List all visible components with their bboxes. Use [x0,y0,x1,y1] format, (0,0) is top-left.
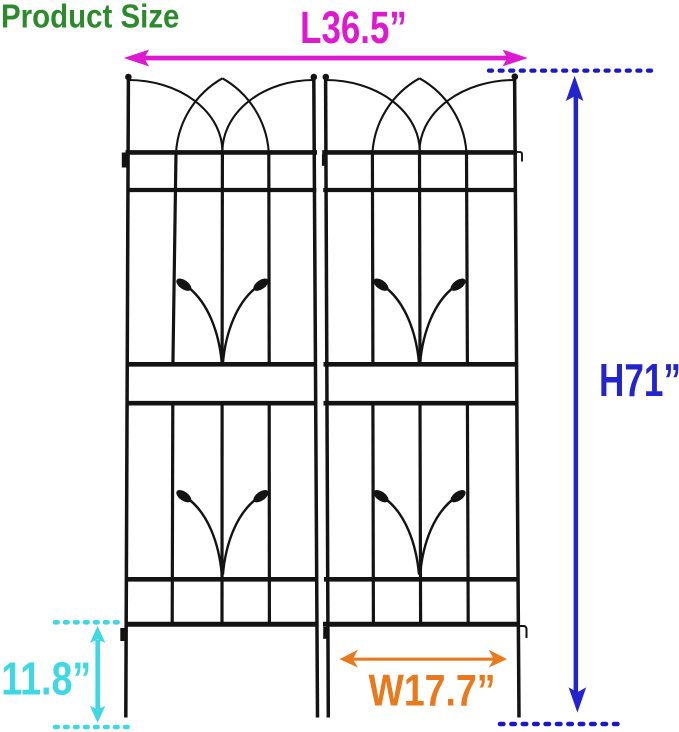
svg-text:W17.7”: W17.7” [368,665,495,715]
svg-text:Product Size: Product Size [1,0,179,35]
svg-text:L36.5”: L36.5” [300,2,407,54]
svg-text:11.8”: 11.8” [1,653,91,705]
svg-text:H71”: H71” [599,354,679,406]
